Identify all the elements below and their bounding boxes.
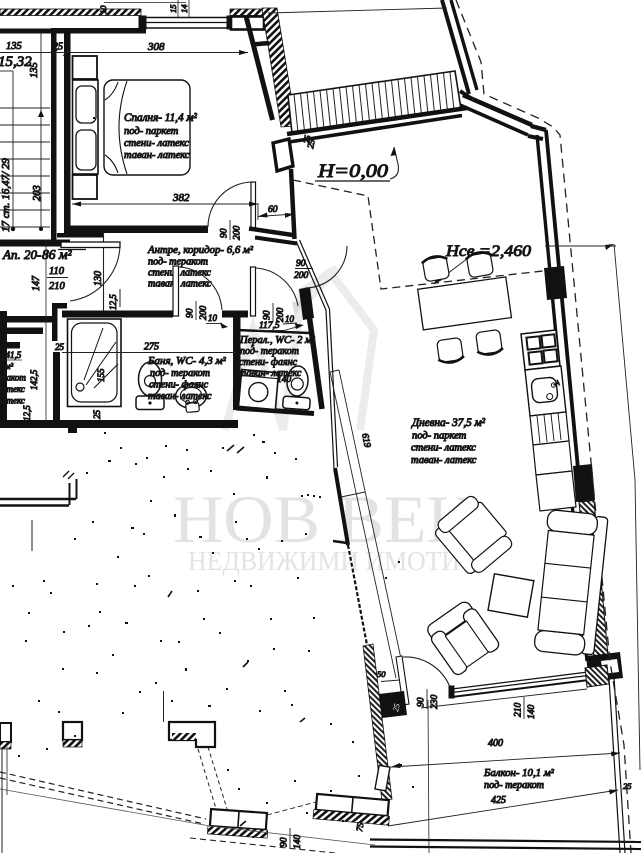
svg-text:стени- фаянс: стени- фаянс [149, 380, 209, 391]
svg-text:10: 10 [98, 5, 108, 14]
svg-text:таван- латекс: таван- латекс [411, 455, 477, 466]
svg-text:Спалня- 11,4 м²: Спалня- 11,4 м² [124, 112, 197, 124]
svg-text:86 м²: 86 м² [42, 247, 72, 262]
svg-text:12,5: 12,5 [108, 294, 118, 310]
svg-text:275: 275 [144, 342, 159, 353]
svg-text:стени- латекс: стени- латекс [411, 443, 476, 454]
svg-text:таван- латекс: таван- латекс [239, 368, 302, 379]
svg-text:308: 308 [147, 41, 165, 53]
svg-text:Дневна- 37,5 м²: Дневна- 37,5 м² [411, 417, 486, 429]
svg-text:130: 130 [93, 271, 104, 286]
svg-text:382: 382 [172, 192, 190, 204]
svg-text:25: 25 [55, 342, 65, 352]
svg-text:Балкон- 10,1 м²: Балкон- 10,1 м² [483, 767, 555, 779]
svg-text:200: 200 [233, 226, 243, 241]
svg-text:50: 50 [377, 669, 386, 679]
svg-text:400: 400 [488, 738, 503, 749]
svg-text:110: 110 [49, 266, 65, 277]
svg-text:12,5: 12,5 [22, 405, 32, 421]
svg-text:147: 147 [31, 275, 42, 291]
svg-text:под- теракот: под- теракот [484, 780, 544, 791]
svg-text:под- паркет: под- паркет [124, 126, 179, 137]
svg-text:425: 425 [491, 795, 506, 806]
svg-text:таван- латекс: таван- латекс [124, 150, 190, 161]
svg-text:таван- латекс: таван- латекс [148, 279, 212, 290]
svg-text:15: 15 [168, 5, 178, 14]
svg-text:60: 60 [268, 205, 278, 215]
svg-text:Ап. 20-: Ап. 20- [2, 247, 41, 262]
svg-text:90: 90 [263, 310, 273, 320]
svg-text:латекс: латекс [0, 384, 25, 394]
svg-text:25: 25 [623, 781, 632, 791]
svg-text:под- паркет: под- паркет [412, 431, 467, 442]
svg-text:200: 200 [294, 271, 309, 281]
svg-text:10: 10 [285, 314, 295, 324]
svg-text:стени- латекс: стени- латекс [124, 138, 189, 149]
svg-text:117,5: 117,5 [259, 321, 280, 331]
svg-text:25: 25 [53, 42, 63, 53]
svg-text:90: 90 [220, 228, 230, 238]
svg-text:15,32: 15,32 [0, 54, 32, 70]
svg-text:203: 203 [32, 185, 43, 201]
svg-text:10: 10 [208, 313, 218, 323]
svg-text:17 ст. 16,47/ 29: 17 ст. 16,47/ 29 [0, 158, 12, 232]
svg-text:стени- фаянс: стени- фаянс [239, 357, 298, 368]
svg-text:90: 90 [417, 697, 427, 707]
svg-text:135: 135 [6, 41, 22, 52]
svg-text:140: 140 [527, 705, 537, 720]
svg-text:210: 210 [49, 281, 66, 292]
svg-text:210: 210 [514, 703, 524, 718]
svg-text:90: 90 [186, 308, 196, 318]
svg-text:НЕДВИЖИМИ ИМОТИ: НЕДВИЖИМИ ИМОТИ [188, 545, 460, 576]
svg-text:14: 14 [179, 4, 189, 13]
svg-text:под- теракот: под- теракот [150, 368, 210, 379]
svg-text:155: 155 [96, 368, 106, 382]
svg-text:Баня, WC- 4,3 м²: Баня, WC- 4,3 м² [147, 355, 226, 367]
svg-text:25: 25 [301, 134, 312, 144]
svg-text:Антре, коридор- 6,6 м²: Антре, коридор- 6,6 м² [147, 244, 254, 256]
svg-text:2 м²: 2 м² [0, 361, 13, 371]
svg-text:Перал., WC- 2 м²: Перал., WC- 2 м² [239, 335, 316, 346]
svg-text:таван- латекс: таван- латекс [148, 391, 212, 402]
svg-text:141,5: 141,5 [1, 350, 22, 360]
svg-text:140: 140 [277, 375, 292, 385]
svg-text:стени- латекс: стени- латекс [148, 268, 211, 279]
svg-text:25: 25 [92, 410, 102, 420]
svg-text:еракот: еракот [0, 373, 26, 383]
svg-text:под- теракот: под- теракот [240, 346, 299, 357]
svg-text:142,5: 142,5 [29, 369, 39, 390]
svg-text:латекс: латекс [0, 396, 25, 406]
svg-text:Н=0,00: Н=0,00 [317, 161, 389, 182]
svg-text:140: 140 [293, 835, 303, 850]
